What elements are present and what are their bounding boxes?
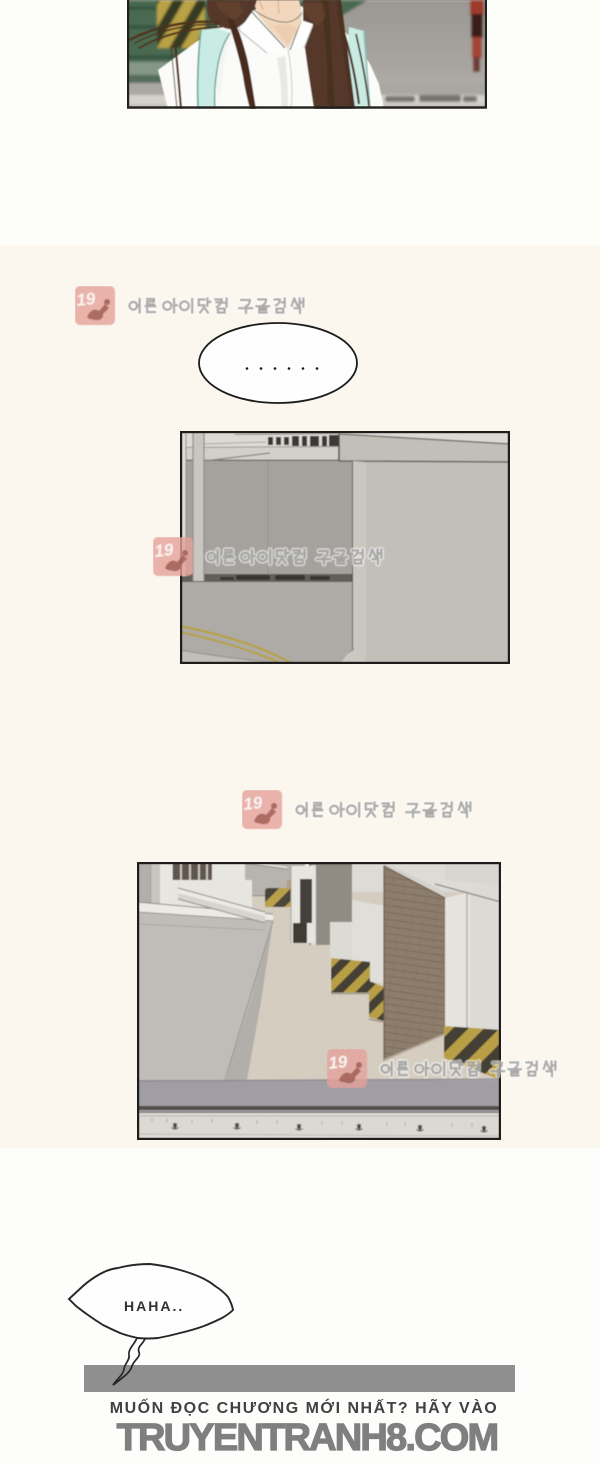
svg-text:HAHA..: HAHA.. [124,1298,184,1314]
